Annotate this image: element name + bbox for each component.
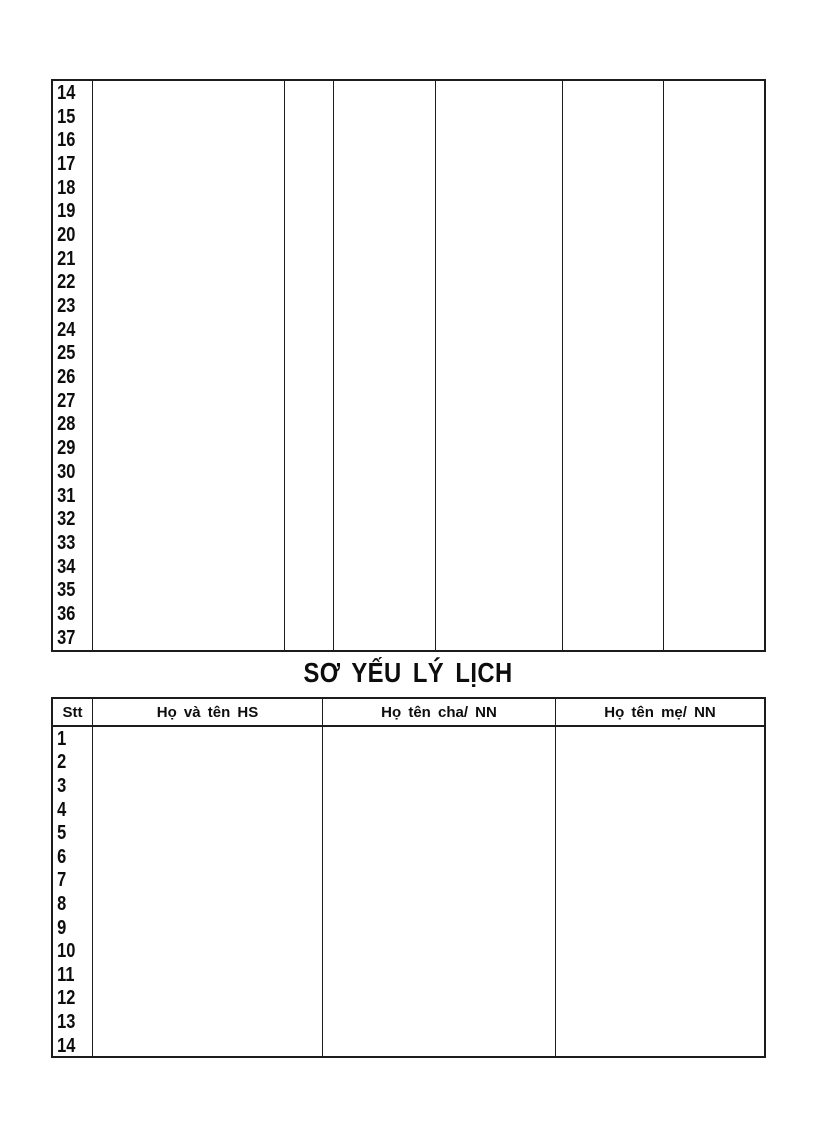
column-header-stt: Stt — [53, 699, 92, 725]
mother-name-column — [555, 727, 764, 1056]
roster-table: Stt Họ và tên HS Họ tên cha/ NN Họ tên m… — [51, 697, 766, 1058]
row-number: 22 — [53, 271, 85, 295]
row-number: 20 — [53, 223, 85, 247]
row-number: 34 — [53, 555, 85, 579]
page-title-text: SƠ YẾU LÝ LỊCH — [303, 657, 512, 689]
stt-column: 1415161718192021222324252627282930313233… — [53, 81, 92, 650]
row-number: 2 — [53, 751, 85, 775]
row-number: 33 — [53, 531, 85, 555]
row-number: 12 — [53, 987, 85, 1011]
empty-column-2 — [284, 81, 333, 650]
row-number: 15 — [53, 105, 85, 129]
row-number: 24 — [53, 318, 85, 342]
row-number: 21 — [53, 247, 85, 271]
column-header-mother-name: Họ tên mẹ/ NN — [555, 699, 764, 725]
row-number: 35 — [53, 578, 85, 602]
row-number: 3 — [53, 774, 85, 798]
row-number: 26 — [53, 365, 85, 389]
row-number: 25 — [53, 342, 85, 366]
page-title: SƠ YẾU LÝ LỊCH — [0, 654, 816, 692]
row-number: 17 — [53, 152, 85, 176]
column-header-father-name: Họ tên cha/ NN — [322, 699, 555, 725]
row-number: 7 — [53, 869, 85, 893]
roster-body: 1234567891011121314 — [53, 727, 764, 1056]
empty-column-5 — [562, 81, 663, 650]
row-number: 1 — [53, 727, 85, 751]
row-number: 8 — [53, 892, 85, 916]
column-header-student-name: Họ và tên HS — [92, 699, 322, 725]
row-number: 32 — [53, 507, 85, 531]
row-number: 36 — [53, 602, 85, 626]
page: 1415161718192021222324252627282930313233… — [0, 0, 816, 1123]
empty-column-6 — [663, 81, 764, 650]
row-number: 6 — [53, 845, 85, 869]
row-number: 19 — [53, 199, 85, 223]
row-number: 9 — [53, 916, 85, 940]
row-number: 30 — [53, 460, 85, 484]
row-number: 28 — [53, 413, 85, 437]
stt-column: 1234567891011121314 — [53, 727, 92, 1056]
father-name-column — [322, 727, 555, 1056]
row-number: 29 — [53, 436, 85, 460]
row-number: 4 — [53, 798, 85, 822]
continuation-table: 1415161718192021222324252627282930313233… — [51, 79, 766, 652]
row-number: 13 — [53, 1010, 85, 1034]
row-number: 5 — [53, 821, 85, 845]
student-name-column — [92, 727, 322, 1056]
row-number: 14 — [53, 1034, 85, 1056]
row-number: 23 — [53, 294, 85, 318]
row-number: 27 — [53, 389, 85, 413]
row-number: 16 — [53, 128, 85, 152]
row-number: 11 — [53, 963, 85, 987]
row-number: 37 — [53, 626, 85, 650]
empty-column-4 — [435, 81, 562, 650]
row-number: 14 — [53, 81, 85, 105]
roster-header-row: Stt Họ và tên HS Họ tên cha/ NN Họ tên m… — [53, 699, 764, 727]
row-number: 31 — [53, 484, 85, 508]
empty-column-1 — [92, 81, 284, 650]
empty-column-3 — [333, 81, 435, 650]
row-number: 18 — [53, 176, 85, 200]
row-number: 10 — [53, 939, 85, 963]
